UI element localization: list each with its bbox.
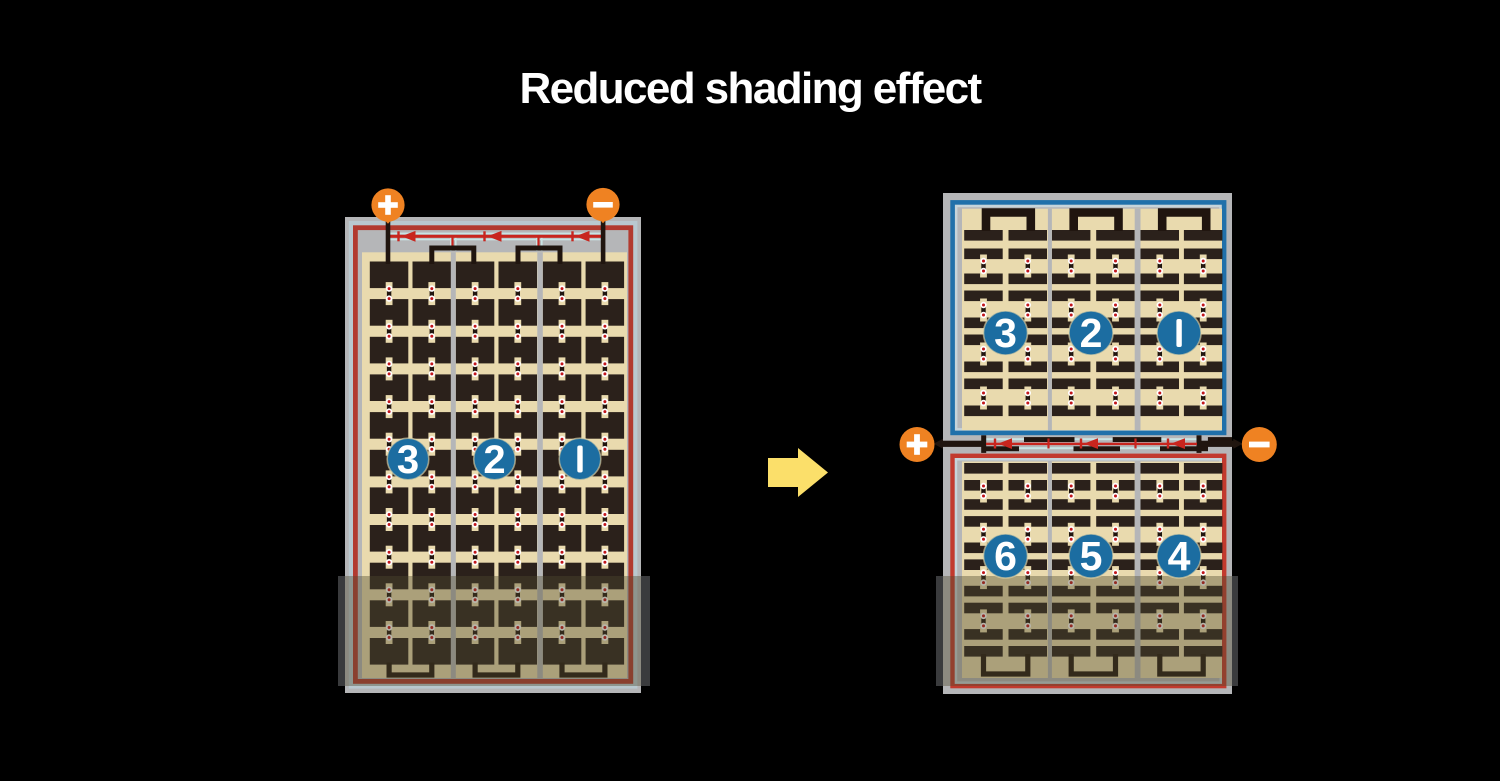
svg-text:5: 5 (1080, 533, 1103, 579)
svg-text:3: 3 (994, 310, 1017, 356)
svg-text:2: 2 (1080, 310, 1103, 356)
svg-text:3: 3 (397, 438, 419, 482)
svg-text:Reduced shading effect: Reduced shading effect (519, 64, 982, 113)
svg-text:2: 2 (483, 438, 505, 482)
svg-text:6: 6 (994, 533, 1017, 579)
svg-text:4: 4 (1168, 533, 1191, 579)
